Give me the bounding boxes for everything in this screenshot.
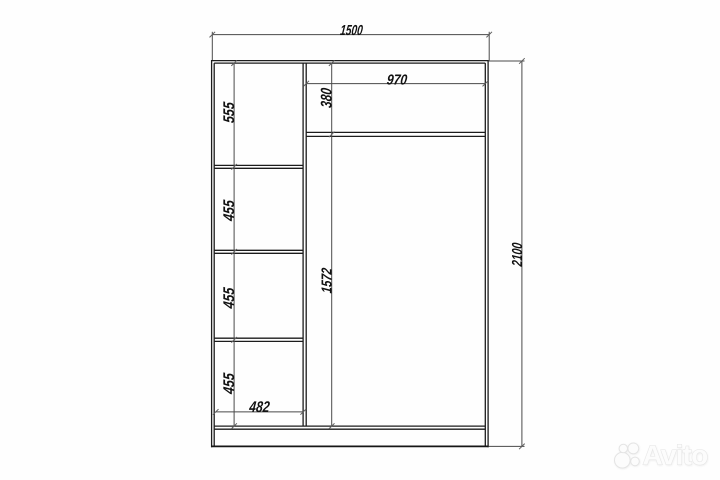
- svg-text:1500: 1500: [339, 22, 363, 38]
- svg-text:2100: 2100: [508, 242, 525, 268]
- svg-text:1572: 1572: [318, 266, 335, 294]
- svg-text:455: 455: [220, 287, 238, 311]
- svg-text:970: 970: [386, 72, 408, 88]
- svg-text:Avito: Avito: [643, 440, 709, 471]
- svg-text:380: 380: [317, 87, 335, 109]
- svg-text:555: 555: [220, 101, 238, 124]
- svg-text:482: 482: [248, 398, 271, 416]
- svg-text:455: 455: [220, 199, 238, 223]
- svg-text:455: 455: [220, 372, 238, 396]
